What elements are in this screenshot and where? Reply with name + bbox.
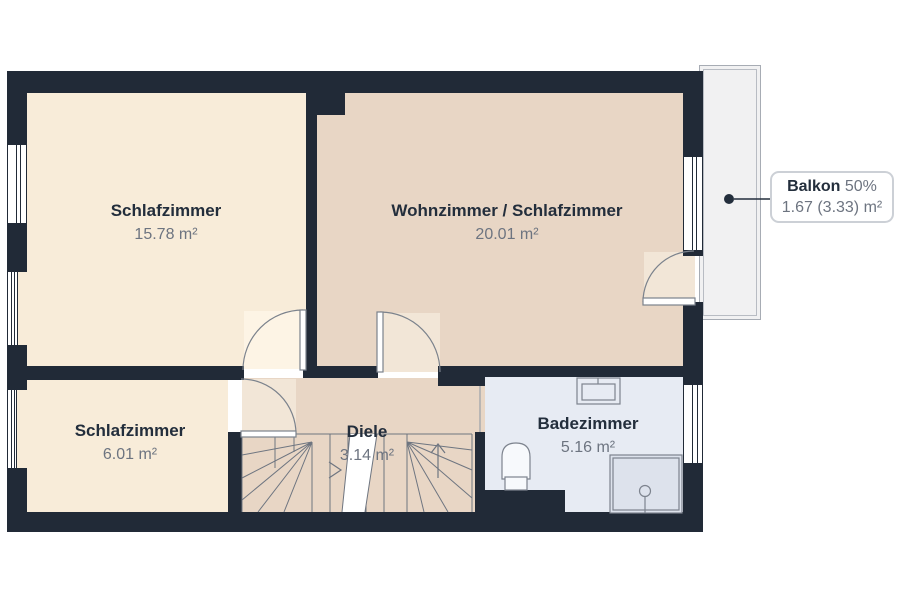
floor-plan: Schlafzimmer 15.78 m² Wohnzimmer / Schla… (0, 0, 900, 610)
wall-hallway-bedroom-stub (228, 366, 242, 380)
window-bedroom-large-1 (7, 145, 27, 223)
balcony-callout-name: Balkon (787, 178, 840, 195)
wall-outer-left-2 (7, 223, 27, 272)
window-living-balcony (683, 157, 703, 250)
room-living (317, 93, 683, 366)
door-swing-balcony (644, 252, 695, 302)
wall-bedroom-living-divider (306, 93, 317, 367)
balcony-inner-outline (703, 69, 757, 316)
window-pane-line (14, 390, 15, 468)
window-pane-line (692, 157, 693, 250)
balcony-area (699, 65, 761, 320)
wall-outer-bottom (7, 512, 703, 532)
window-pane-line (20, 145, 21, 223)
window-bathroom (683, 385, 703, 463)
window-pane-line (11, 272, 12, 345)
door-swing-living (381, 313, 440, 372)
window-pane-line (696, 157, 697, 250)
window-pane-line (697, 385, 698, 463)
wall-chimney-block (306, 93, 345, 115)
wall-outer-right-1 (683, 93, 703, 157)
balcony-callout-share: 50% (845, 178, 877, 195)
wall-outer-right-2 (683, 302, 703, 385)
wall-outer-left-1 (7, 93, 27, 145)
bathroom-doorway-floor (475, 386, 485, 432)
window-pane-line (11, 390, 12, 468)
room-bathroom-extension (565, 490, 683, 513)
wall-horizontal-living (317, 366, 378, 378)
window-pane-line (16, 145, 17, 223)
wall-bathroom-top (485, 366, 683, 377)
wall-bottom-bump (480, 490, 565, 512)
wall-horizontal-left (7, 366, 244, 380)
window-bedroom-large-2 (7, 272, 18, 345)
wall-hallway-bedroom-lower (228, 432, 242, 512)
window-reveal (17, 390, 27, 468)
balcony-callout-title: Balkon 50% (787, 176, 877, 197)
window-bedroom-small (7, 390, 17, 468)
window-pane-line (692, 385, 693, 463)
wall-outer-right-3 (683, 463, 703, 532)
wall-junction-block (438, 366, 485, 386)
balcony-callout-area: 1.67 (3.33) m² (782, 197, 882, 218)
balcony-callout: Balkon 50% 1.67 (3.33) m² (770, 171, 894, 223)
wall-outer-top (7, 71, 703, 93)
wall-horizontal-stub (303, 366, 317, 378)
room-bedroom-small (27, 380, 228, 512)
window-pane-line (14, 272, 15, 345)
wall-hallway-bathroom (475, 432, 485, 512)
door-swing-bedroom-small (242, 379, 296, 434)
window-sill-living (683, 250, 703, 256)
window-reveal (18, 272, 27, 345)
door-swing-bedroom-large (244, 311, 303, 369)
room-bathroom (485, 377, 683, 490)
